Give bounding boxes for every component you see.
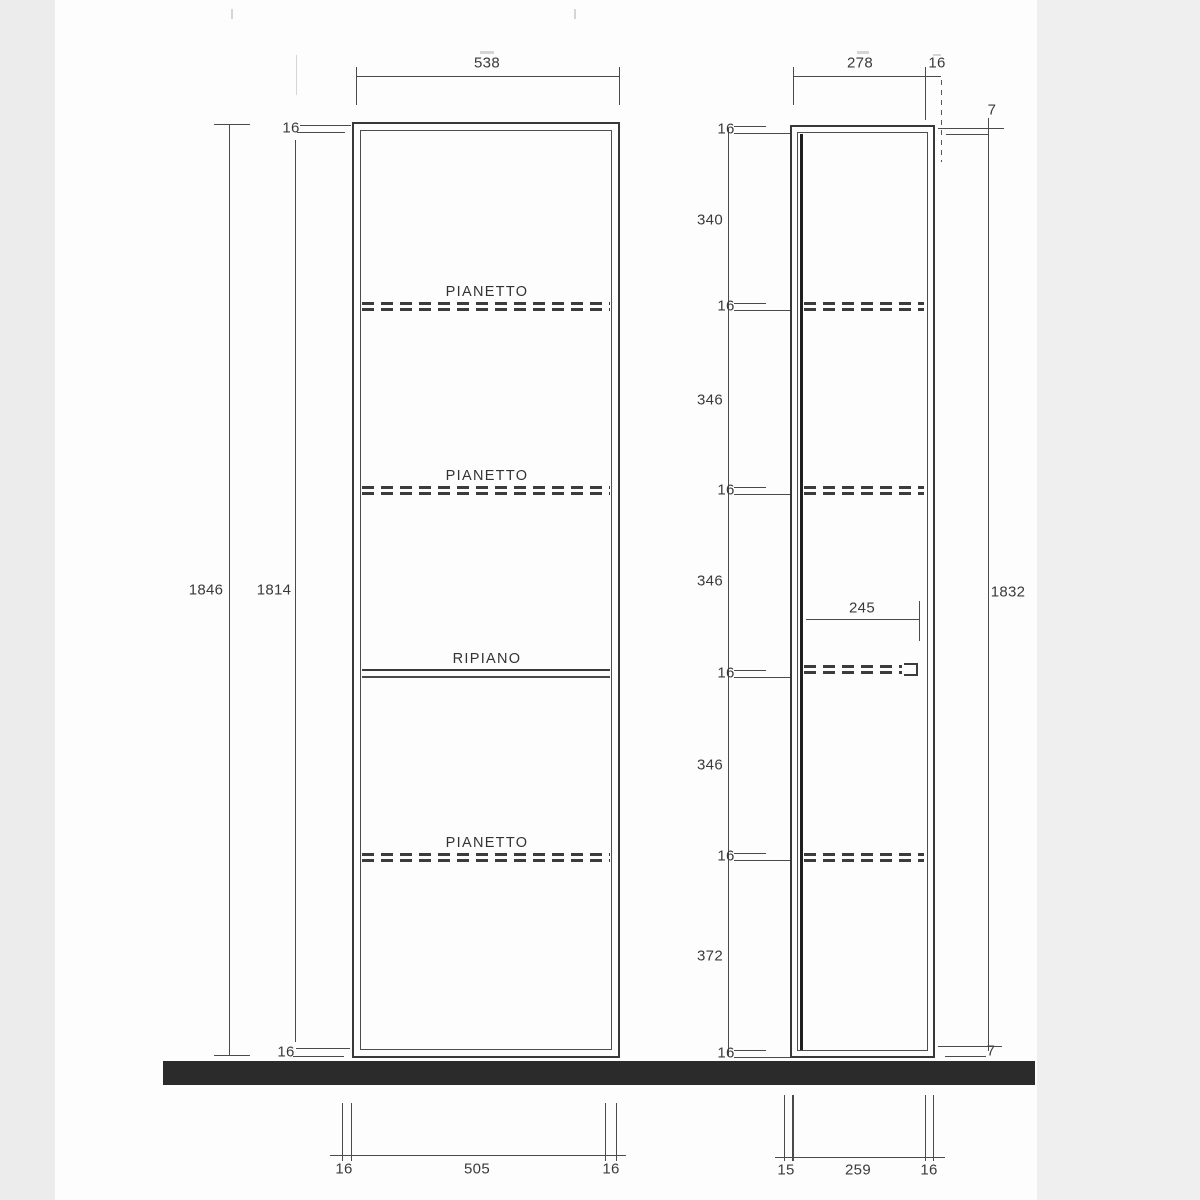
leader-line <box>734 670 766 671</box>
dimension-line <box>988 118 989 1051</box>
dim-label-bottom-middle: 505 <box>464 1161 490 1178</box>
shelf-label: RIPIANO <box>453 651 522 667</box>
dimension-line <box>793 76 941 77</box>
shelf-dashed-line <box>804 492 924 495</box>
leader-line <box>734 860 792 861</box>
shelf-dashed-line <box>362 486 610 489</box>
dimension-line <box>295 140 296 1042</box>
shelf-dashed-line <box>804 308 924 311</box>
dim-label-bottom-left: 15 <box>777 1162 794 1179</box>
tick <box>214 1055 250 1056</box>
dim-label-top-gap: 7 <box>988 102 997 119</box>
shelf-dashed-line <box>804 486 924 489</box>
extension-line <box>356 67 357 105</box>
extension-line <box>925 1095 926 1161</box>
floor-line <box>163 1061 1035 1085</box>
leader-line <box>734 133 792 134</box>
leader-line <box>297 132 345 133</box>
extension-line <box>933 1095 934 1161</box>
dim-label-bottom-left: 16 <box>335 1161 352 1178</box>
extension-line <box>351 1103 352 1161</box>
tick <box>214 124 250 125</box>
extension-line <box>925 67 926 120</box>
leader-line <box>938 128 1004 129</box>
leader-line <box>296 1048 350 1049</box>
dimension-line <box>330 1155 626 1156</box>
dimension-line <box>356 76 620 77</box>
shelf-label: PIANETTO <box>446 835 529 851</box>
extension-line <box>619 67 620 105</box>
scan-artifact <box>231 9 233 19</box>
extension-line <box>792 1095 794 1161</box>
front-cabinet-inner-outline <box>360 130 612 1050</box>
leader-line <box>734 853 766 854</box>
extension-line <box>784 1095 785 1161</box>
leader-line <box>734 494 792 495</box>
shelf-label: PIANETTO <box>446 468 529 484</box>
dim-label-side-height: 1832 <box>991 584 1026 601</box>
dim-label-side-depth: 278 <box>847 55 873 72</box>
leader-line <box>734 126 766 127</box>
shelf-dashed-line <box>804 671 902 674</box>
extension-line-dashed <box>941 80 942 162</box>
shelf-dashed-line <box>804 665 902 668</box>
leader-line <box>734 677 792 678</box>
shelf-dashed-line <box>804 302 924 305</box>
leader-line <box>734 303 766 304</box>
shelf-dashed-line <box>362 859 610 862</box>
shelf-solid-line <box>362 669 610 671</box>
shelf-dashed-line <box>362 308 610 311</box>
leader-line <box>734 310 792 311</box>
dimension-line <box>229 124 230 1056</box>
chain-marker-label: 16 <box>717 848 734 865</box>
shelf-label: PIANETTO <box>446 284 529 300</box>
scan-artifact <box>857 51 869 54</box>
chain-marker-label: 16 <box>717 298 734 315</box>
chain-marker-label: 16 <box>717 482 734 499</box>
side-front-edge-line <box>800 134 803 1050</box>
leader-line <box>938 1046 1002 1047</box>
leader-line <box>300 125 351 126</box>
scan-artifact <box>933 54 941 56</box>
dim-label-bottom-right: 16 <box>602 1161 619 1178</box>
chain-marker-label: 16 <box>717 121 734 138</box>
dimension-line <box>775 1157 945 1158</box>
extension-line <box>793 67 794 105</box>
chain-marker-label: 16 <box>717 1045 734 1062</box>
extension-line <box>616 1103 617 1161</box>
shelf-solid-line <box>362 676 610 678</box>
shelf-dashed-line <box>362 853 610 856</box>
dim-label-bottom-middle: 259 <box>845 1162 871 1179</box>
chain-gap-label: 340 <box>697 212 723 229</box>
dim-label-bottom-right: 16 <box>920 1162 937 1179</box>
shelf-dashed-line <box>362 302 610 305</box>
leader-line <box>293 1056 344 1057</box>
shelf-dashed-line <box>804 853 924 856</box>
chain-gap-label: 346 <box>697 392 723 409</box>
extension-line <box>342 1103 343 1161</box>
leader-line <box>734 487 766 488</box>
dim-label-top-panel: 16 <box>282 120 299 137</box>
scan-artifact <box>480 51 494 54</box>
dimension-line <box>728 128 729 1056</box>
chain-marker-label: 16 <box>717 665 734 682</box>
extension-line <box>919 601 920 641</box>
side-cabinet-inner-outline <box>797 132 928 1051</box>
scan-artifact <box>574 9 576 19</box>
dim-label-bottom-panel: 16 <box>277 1044 294 1061</box>
chain-gap-label: 372 <box>697 948 723 965</box>
extension-line <box>605 1103 606 1161</box>
dim-label-outer-height: 1846 <box>189 582 224 599</box>
scan-margin-right <box>1037 0 1200 1200</box>
dim-label-inner-height: 1814 <box>257 582 292 599</box>
leader-line <box>734 1057 792 1058</box>
dimension-line <box>806 619 920 620</box>
dim-label-back-panel: 16 <box>928 55 945 72</box>
leader-line <box>946 134 988 135</box>
shelf-dashed-line <box>804 859 924 862</box>
dim-label-shelf-depth: 245 <box>849 600 875 617</box>
scan-margin-left <box>0 0 55 1200</box>
technical-drawing-canvas: PIANETTO PIANETTO RIPIANO PIANETTO 538 1… <box>0 0 1200 1200</box>
shelf-end-bracket <box>904 663 918 676</box>
leader-line <box>734 1050 766 1051</box>
leader-line <box>945 1056 986 1057</box>
scan-artifact <box>296 55 297 95</box>
chain-gap-label: 346 <box>697 757 723 774</box>
shelf-dashed-line <box>362 492 610 495</box>
dim-label-front-width: 538 <box>474 55 500 72</box>
chain-gap-label: 346 <box>697 573 723 590</box>
